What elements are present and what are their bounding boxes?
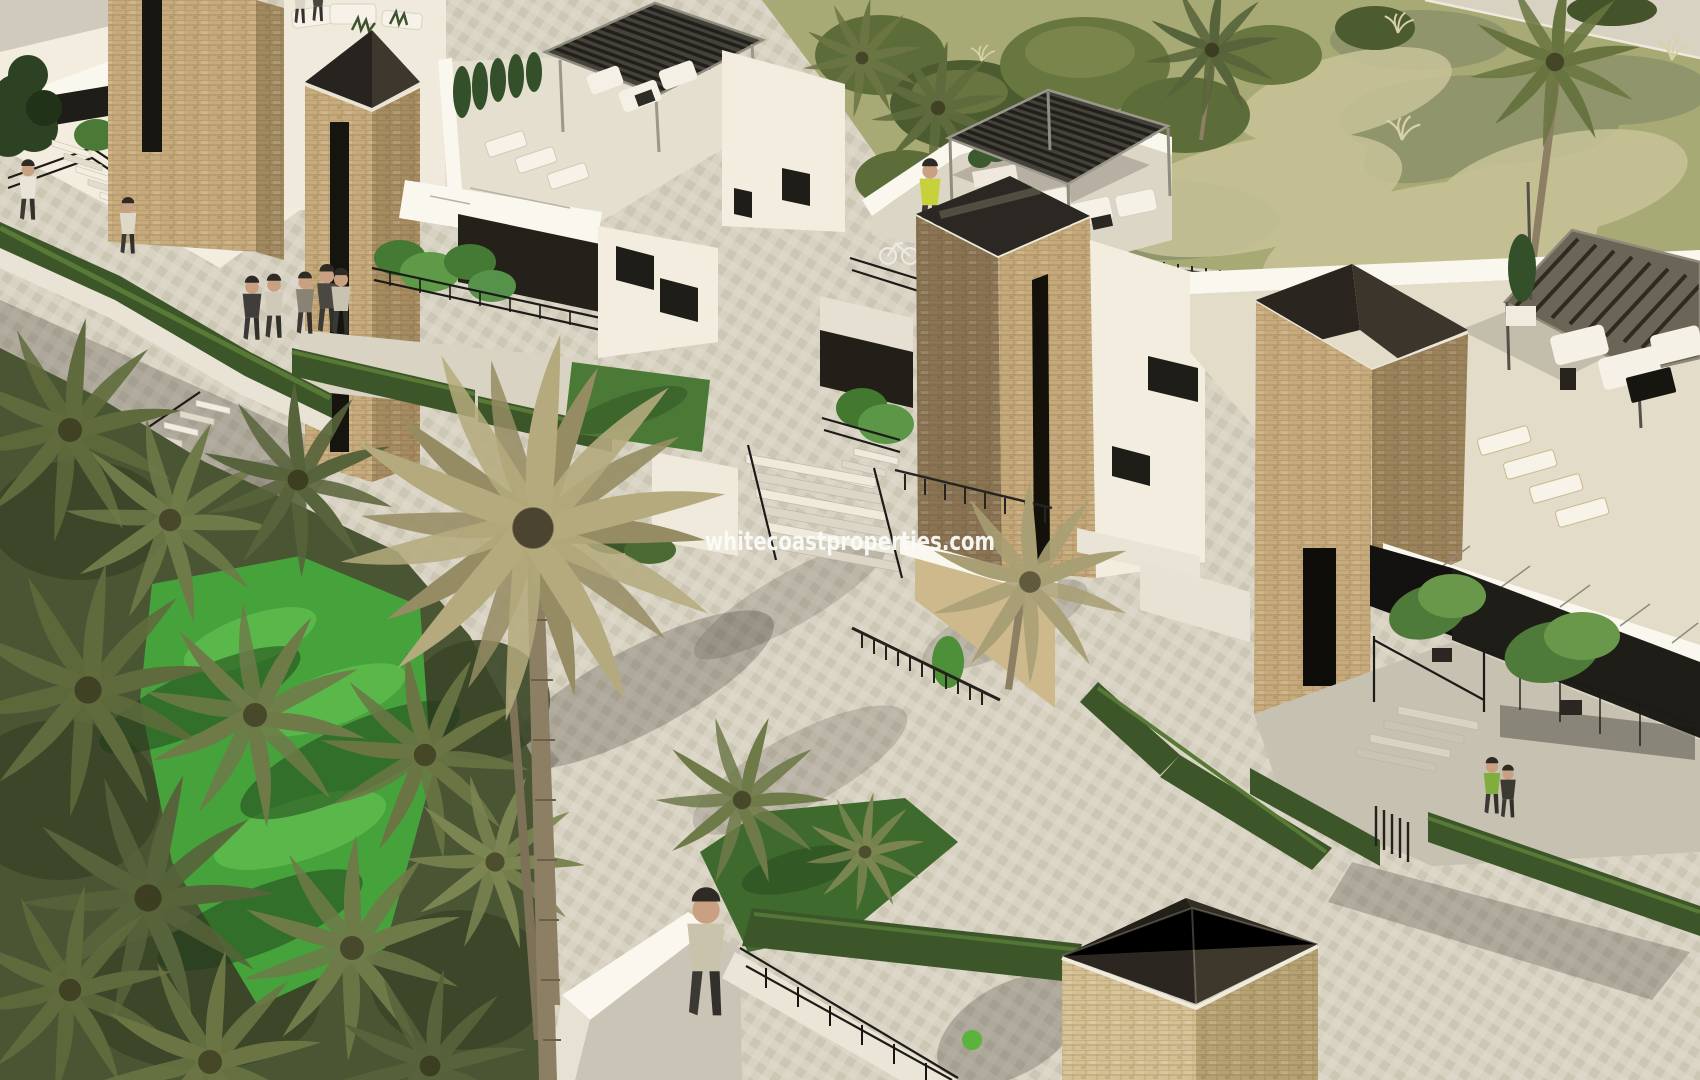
- watermark: whitecoastproperties.com: [705, 527, 995, 557]
- tower-slot-window: [142, 0, 162, 152]
- villa-side-face: [598, 226, 718, 358]
- render-image: whitecoastproperties.com: [0, 0, 1700, 1080]
- tower-door: [1303, 548, 1336, 686]
- villa-development-scene: whitecoastproperties.com: [0, 0, 1700, 1080]
- center-villa-body: [1077, 240, 1205, 580]
- stone-tower-center: [916, 176, 1096, 578]
